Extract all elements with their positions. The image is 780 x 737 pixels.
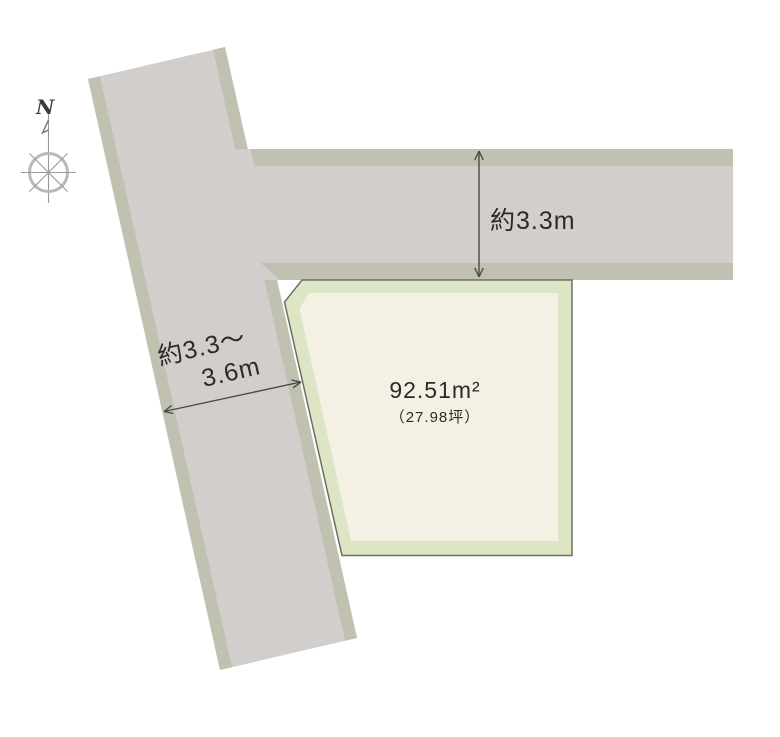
horizontal-road-bottom-edge-strip xyxy=(261,263,733,280)
top-road-width-label: 約3.3m xyxy=(490,201,576,237)
parcel-area-label: 92.51m² xyxy=(335,377,535,404)
horizontal-road xyxy=(235,149,733,280)
site-plan-diagram: N 92.51m² （27.98坪） 約3.3m 約3.3～ 3.6m xyxy=(0,0,780,737)
compass-icon xyxy=(21,114,76,203)
parcel-tsubo-label: （27.98坪） xyxy=(335,406,535,427)
horizontal-road-surface xyxy=(235,149,733,280)
horizontal-road-top-edge-strip xyxy=(251,149,733,166)
north-label: N xyxy=(36,95,54,119)
site-plan-drawing xyxy=(0,0,780,737)
